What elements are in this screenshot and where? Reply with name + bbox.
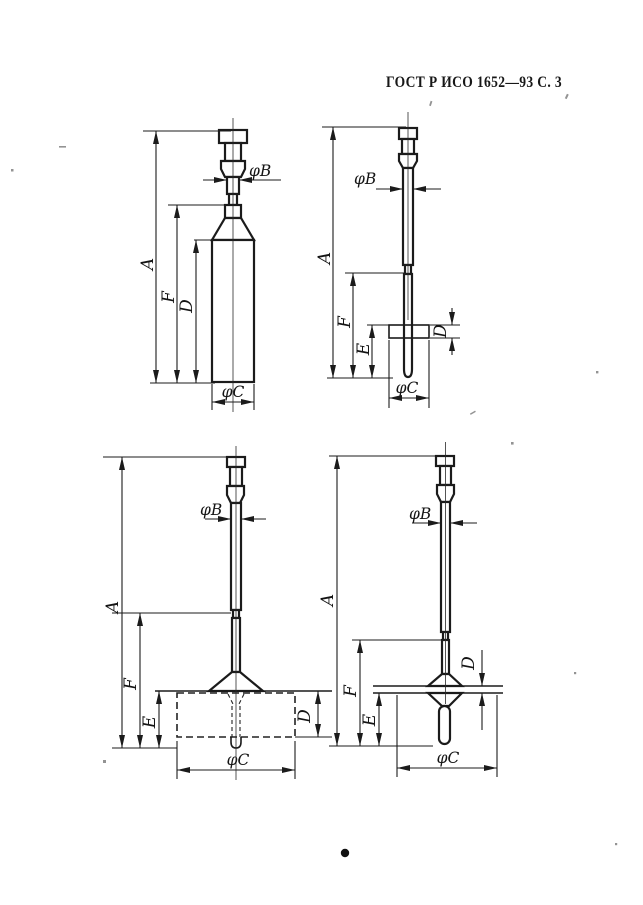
- spindle-outline: [373, 456, 503, 744]
- dim-label-F: F: [159, 290, 179, 304]
- dimension-E: E: [140, 691, 160, 748]
- dim-label-E: E: [140, 715, 160, 729]
- dimension-D: D: [459, 650, 482, 730]
- figure-bottom-left-cup-spindle: A F E D φB φC: [103, 446, 332, 780]
- dim-label-E: E: [354, 342, 374, 356]
- dim-label-F: F: [335, 315, 355, 329]
- dimension-D: D: [177, 240, 213, 383]
- dim-label-D: D: [177, 299, 197, 314]
- dimension-E: E: [354, 325, 389, 378]
- page-dot: [341, 849, 349, 857]
- technical-drawing-canvas: ГОСТ Р ИСО 1652—93 С. 3 A F D: [0, 0, 643, 905]
- dim-label-D: D: [459, 656, 479, 671]
- figure-top-left-cylinder-spindle: A F D φB φC: [138, 118, 281, 412]
- dim-label-phiC: φC: [396, 379, 419, 397]
- dim-label-A: A: [138, 258, 158, 272]
- dim-label-E: E: [360, 713, 380, 727]
- scan-noise: [11, 94, 617, 857]
- dimension-E: E: [360, 693, 380, 746]
- dim-label-F: F: [341, 684, 361, 698]
- spindle-outline: [155, 457, 332, 748]
- dim-label-phiB: φB: [354, 170, 376, 188]
- dimension-D: D: [430, 308, 460, 355]
- dimension-phiB: φB: [354, 170, 441, 189]
- spindle-outline: [389, 128, 429, 377]
- dim-label-phiB: φB: [200, 501, 222, 519]
- dim-label-D: D: [431, 324, 451, 339]
- dim-label-A: A: [315, 252, 335, 266]
- dim-label-A: A: [318, 594, 338, 608]
- figure-top-right-disc-spindle: A F E D φB φC: [315, 112, 460, 408]
- dim-label-phiB: φB: [409, 505, 431, 523]
- dimension-F: F: [112, 613, 231, 748]
- dimension-A: A: [315, 127, 406, 378]
- page-header: ГОСТ Р ИСО 1652—93 С. 3: [386, 74, 562, 91]
- dimension-D: D: [295, 691, 332, 737]
- dim-label-phiC: φC: [227, 751, 250, 769]
- document-page: ГОСТ Р ИСО 1652—93 С. 3 A F D: [0, 0, 643, 905]
- dim-label-phiC: φC: [437, 749, 460, 767]
- dim-label-F: F: [121, 677, 141, 691]
- dim-label-D: D: [295, 709, 315, 724]
- dim-label-phiB: φB: [249, 162, 271, 180]
- figure-bottom-right-cone-disc-spindle: A F E D φB φC: [318, 442, 503, 777]
